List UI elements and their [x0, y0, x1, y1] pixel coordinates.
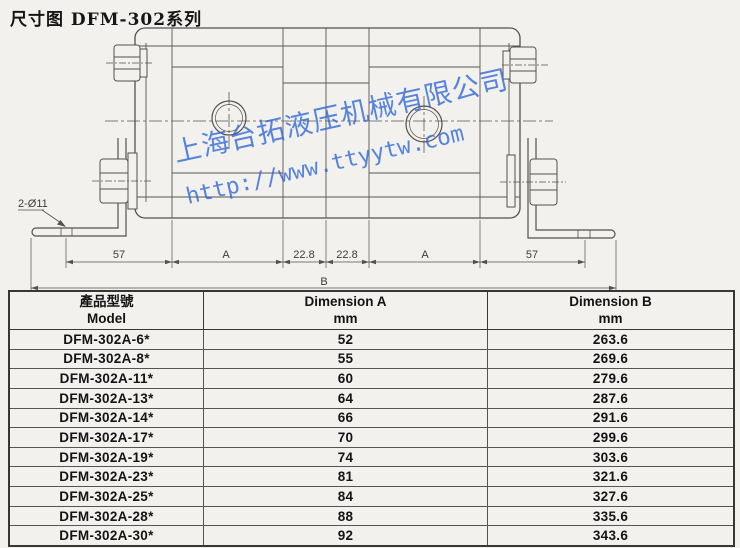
table-row: DFM-302A-28* 88 335.6: [10, 507, 733, 527]
cell-dim-b: 335.6: [488, 507, 733, 526]
cell-dim-b: 263.6: [488, 330, 733, 349]
cell-dim-a: 66: [204, 409, 488, 428]
bolt-top-right: [502, 47, 548, 83]
header-dim-b-title: Dimension B: [569, 294, 652, 311]
cell-dim-a: 84: [204, 487, 488, 506]
header-dimension-a: Dimension A mm: [204, 292, 488, 329]
dimension-drawing: 2-Ø11 57 A 22.8 22.8 A 57 B 上海台拓液压机械有限公司…: [0, 0, 740, 292]
cell-dim-b: 343.6: [488, 526, 733, 545]
dim-left-228: 22.8: [293, 249, 314, 261]
cell-dim-b: 299.6: [488, 428, 733, 447]
cell-dim-a: 81: [204, 467, 488, 486]
table-row: DFM-302A-23* 81 321.6: [10, 467, 733, 487]
header-dim-b-unit: mm: [598, 311, 622, 328]
watermark: 上海台拓液压机械有限公司 http://www.ttyytw.com: [171, 64, 512, 210]
dim-right-57: 57: [526, 249, 538, 261]
bolt-bottom-left: [92, 153, 152, 209]
cell-model: DFM-302A-19*: [10, 448, 204, 467]
spec-table-body: DFM-302A-6* 52 263.6 DFM-302A-8* 55 269.…: [10, 330, 733, 545]
cell-dim-b: 327.6: [488, 487, 733, 506]
dim-right-228: 22.8: [336, 249, 357, 261]
cell-dim-a: 52: [204, 330, 488, 349]
cell-dim-b: 279.6: [488, 369, 733, 388]
cell-dim-a: 88: [204, 507, 488, 526]
dim-left-57: 57: [113, 249, 125, 261]
hole-callout-label: 2-Ø11: [18, 198, 48, 210]
cell-dim-b: 269.6: [488, 350, 733, 369]
cell-model: DFM-302A-25*: [10, 487, 204, 506]
spec-table-header: 產品型號 Model Dimension A mm Dimension B mm: [10, 292, 733, 330]
cell-dim-a: 92: [204, 526, 488, 545]
dimension-labels: 2-Ø11 57 A 22.8 22.8 A 57 B: [18, 198, 538, 288]
table-row: DFM-302A-17* 70 299.6: [10, 428, 733, 448]
cell-model: DFM-302A-17*: [10, 428, 204, 447]
bolt-top-left: [106, 45, 152, 81]
cell-model: DFM-302A-28*: [10, 507, 204, 526]
header-model: 產品型號 Model: [10, 292, 204, 329]
table-row: DFM-302A-6* 52 263.6: [10, 330, 733, 350]
cell-model: DFM-302A-11*: [10, 369, 204, 388]
cell-model: DFM-302A-14*: [10, 409, 204, 428]
cell-dim-a: 64: [204, 389, 488, 408]
header-dim-a-unit: mm: [333, 311, 357, 328]
table-row: DFM-302A-25* 84 327.6: [10, 487, 733, 507]
spec-table: 產品型號 Model Dimension A mm Dimension B mm…: [8, 290, 735, 547]
cell-dim-a: 70: [204, 428, 488, 447]
header-model-en: Model: [87, 311, 126, 328]
cell-model: DFM-302A-23*: [10, 467, 204, 486]
header-dimension-b: Dimension B mm: [488, 292, 733, 329]
cell-model: DFM-302A-30*: [10, 526, 204, 545]
datasheet-page: 尺寸图 DFM-302系列: [0, 0, 740, 548]
table-row: DFM-302A-14* 66 291.6: [10, 409, 733, 429]
table-row: DFM-302A-13* 64 287.6: [10, 389, 733, 409]
cell-dim-a: 60: [204, 369, 488, 388]
bolt-bottom-right: [500, 155, 566, 207]
dim-overall-B: B: [320, 276, 327, 288]
header-model-zh: 產品型號: [80, 294, 134, 311]
cell-dim-b: 291.6: [488, 409, 733, 428]
header-dim-a-title: Dimension A: [304, 294, 386, 311]
cell-dim-a: 74: [204, 448, 488, 467]
dim-left-A: A: [222, 249, 230, 261]
table-row: DFM-302A-8* 55 269.6: [10, 350, 733, 370]
cell-dim-b: 321.6: [488, 467, 733, 486]
cell-dim-b: 287.6: [488, 389, 733, 408]
table-row: DFM-302A-11* 60 279.6: [10, 369, 733, 389]
cell-dim-b: 303.6: [488, 448, 733, 467]
cell-model: DFM-302A-13*: [10, 389, 204, 408]
table-row: DFM-302A-30* 92 343.6: [10, 526, 733, 545]
cell-dim-a: 55: [204, 350, 488, 369]
table-row: DFM-302A-19* 74 303.6: [10, 448, 733, 468]
dim-right-A: A: [421, 249, 429, 261]
cell-model: DFM-302A-6*: [10, 330, 204, 349]
cell-model: DFM-302A-8*: [10, 350, 204, 369]
